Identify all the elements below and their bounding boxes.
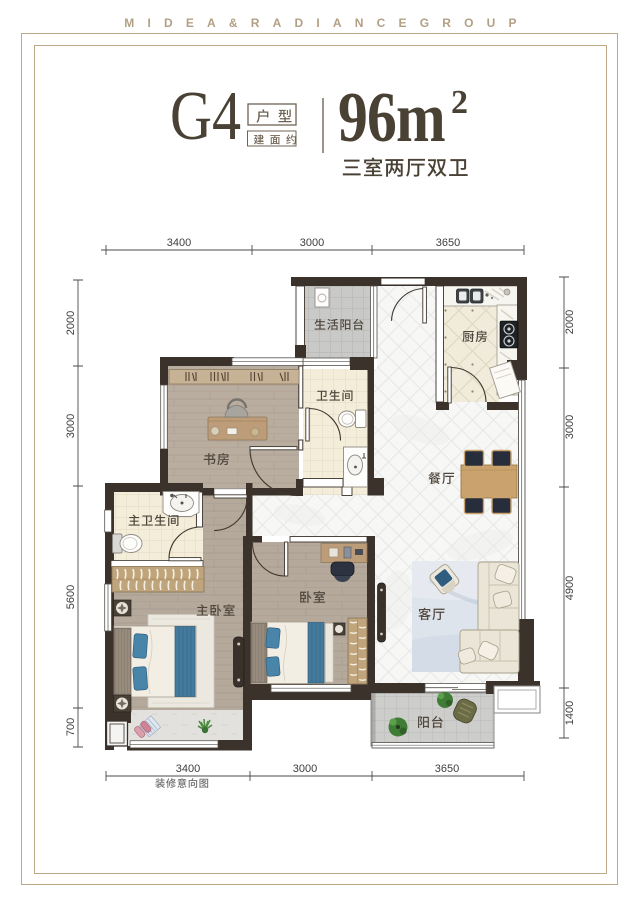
svg-text:2000: 2000 (65, 311, 77, 335)
svg-text:5600: 5600 (65, 585, 77, 609)
svg-text:3650: 3650 (436, 237, 460, 249)
svg-text:4900: 4900 (564, 576, 576, 600)
svg-text:2000: 2000 (564, 310, 576, 334)
svg-text:700: 700 (65, 718, 77, 736)
svg-text:3400: 3400 (167, 237, 191, 249)
svg-text:1400: 1400 (564, 701, 576, 725)
svg-text:3000: 3000 (300, 237, 324, 249)
svg-text:3000: 3000 (293, 763, 317, 775)
svg-text:3400: 3400 (176, 763, 200, 775)
svg-text:3650: 3650 (435, 763, 459, 775)
svg-text:3000: 3000 (564, 415, 576, 439)
svg-text:3000: 3000 (65, 414, 77, 438)
